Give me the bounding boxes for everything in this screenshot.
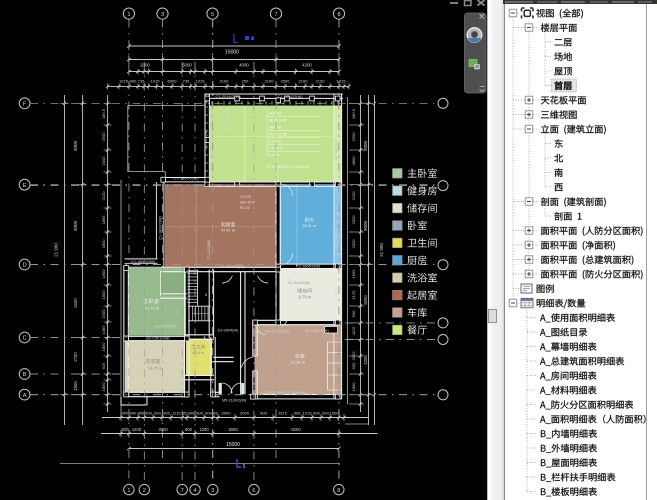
svg-text:900: 900	[122, 411, 129, 416]
svg-text:1115: 1115	[172, 411, 181, 416]
svg-text:5400: 5400	[73, 298, 78, 308]
svg-text:AB1 F8: AB1 F8	[269, 126, 281, 130]
svg-text:1015: 1015	[119, 78, 129, 83]
svg-text:820: 820	[122, 427, 130, 432]
svg-text:1800: 1800	[73, 381, 78, 391]
svg-text:1800: 1800	[101, 290, 106, 300]
svg-text:23.31 m: 23.31 m	[302, 223, 316, 228]
svg-text:C1-2016/2(W): C1-2016/2(W)	[277, 94, 303, 99]
svg-text:A: A	[23, 393, 27, 399]
svg-text:300.45 F: 300.45 F	[240, 201, 256, 205]
svg-text:C2-1800/2(W): C2-1800/2(W)	[173, 176, 199, 181]
svg-text:B1-C5012(W): B1-C5012(W)	[265, 330, 289, 334]
svg-text:3000: 3000	[228, 427, 238, 432]
svg-text:B1-C5012(W): B1-C5012(W)	[146, 337, 170, 341]
svg-text:1500: 1500	[330, 411, 340, 416]
svg-text:900: 900	[185, 427, 193, 432]
svg-text:M5-2100/2(M): M5-2100/2(M)	[222, 399, 247, 403]
svg-text:1500: 1500	[101, 309, 106, 319]
svg-text:E: E	[23, 183, 27, 189]
svg-text:2100: 2100	[265, 78, 275, 83]
svg-text:9000: 9000	[363, 140, 368, 151]
svg-text:6200: 6200	[291, 427, 301, 432]
svg-text:1800: 1800	[101, 382, 106, 392]
svg-text:2000: 2000	[351, 215, 356, 225]
svg-text:C2-3006/2(W) C1-3006(W): C2-3006/2(W) C1-3006(W)	[266, 165, 309, 169]
svg-text:6: 6	[243, 464, 246, 470]
svg-text:1170: 1170	[351, 290, 356, 299]
svg-text:1200: 1200	[199, 427, 209, 432]
svg-text:0 F1 21: 0 F1 21	[269, 140, 281, 144]
svg-text:1515: 1515	[278, 411, 288, 416]
svg-text:2700: 2700	[73, 352, 78, 362]
svg-text:B: B	[23, 372, 27, 378]
svg-text:1: 1	[127, 12, 130, 18]
svg-text:1200: 1200	[132, 427, 142, 432]
svg-text:2100: 2100	[316, 78, 326, 83]
svg-text:900: 900	[351, 310, 356, 317]
svg-text:9000: 9000	[73, 140, 78, 151]
svg-text:B1-C502(W): B1-C502(W)	[155, 325, 177, 329]
svg-text:1115: 1115	[351, 326, 356, 335]
svg-text:900: 900	[154, 411, 161, 416]
svg-text:21 900: 21 900	[379, 243, 384, 257]
svg-text:C1-18/2(W): C1-18/2(W)	[335, 287, 339, 307]
svg-text:4: 4	[193, 488, 196, 494]
svg-text:9000: 9000	[73, 220, 78, 231]
svg-text:21.73 m: 21.73 m	[145, 306, 160, 311]
svg-text:15000: 15000	[225, 50, 239, 56]
svg-text:6000: 6000	[168, 78, 178, 83]
svg-text:180.9: 180.9	[101, 108, 106, 119]
svg-text:1800: 1800	[101, 239, 106, 249]
svg-text:8: 8	[337, 488, 340, 494]
svg-text:2000: 2000	[351, 239, 356, 249]
svg-text:2: 2	[143, 488, 146, 494]
svg-text:4800: 4800	[351, 156, 356, 166]
svg-text:2900: 2900	[351, 132, 356, 142]
svg-text:4.19 m: 4.19 m	[192, 351, 204, 355]
svg-text:900: 900	[196, 411, 203, 416]
svg-text:1015: 1015	[151, 78, 161, 83]
svg-text:C1-1800/2(W): C1-1800/2(W)	[159, 215, 163, 240]
svg-text:1C-18/2(W): 1C-18/2(W)	[335, 139, 339, 159]
svg-text:900: 900	[260, 411, 267, 416]
svg-text:1015: 1015	[196, 78, 206, 83]
svg-text:2000: 2000	[222, 411, 232, 416]
svg-text:18.75 m: 18.75 m	[148, 365, 163, 370]
svg-text:735: 735	[183, 78, 190, 83]
svg-text:7: 7	[274, 12, 277, 18]
svg-text:900: 900	[313, 411, 320, 416]
svg-text:C2-3015/2(W): C2-3015/2(W)	[288, 281, 311, 285]
svg-text:F0.33: F0.33	[240, 206, 250, 210]
svg-text:9000: 9000	[363, 220, 368, 231]
svg-text:2003: 2003	[101, 156, 106, 166]
svg-text:4200: 4200	[363, 355, 368, 365]
svg-text:98.45 + FB: 98.45 + FB	[269, 119, 287, 123]
svg-text:1865: 1865	[101, 215, 106, 225]
svg-text:AB1 F8: AB1 F8	[269, 112, 281, 116]
svg-text:27.81 m: 27.81 m	[291, 359, 306, 364]
svg-text:1800: 1800	[101, 269, 106, 279]
svg-text:900: 900	[163, 411, 170, 416]
svg-text:C1-1806/2(W): C1-1806/2(W)	[220, 265, 245, 269]
svg-text:C1-1506/2(W): C1-1506/2(W)	[140, 390, 165, 394]
svg-text:3800: 3800	[158, 427, 168, 432]
svg-text:FB 1 12 0B: FB 1 12 0B	[269, 133, 288, 137]
svg-text:2000: 2000	[140, 63, 150, 68]
svg-text:47.47 m: 47.47 m	[221, 228, 235, 233]
svg-text:B1-C5012(W): B1-C5012(W)	[305, 329, 329, 333]
svg-text:2500: 2500	[281, 78, 291, 83]
svg-text:1385: 1385	[101, 325, 106, 335]
svg-text:D3-0904(W): D3-0904(W)	[218, 329, 239, 333]
svg-text:3000: 3000	[351, 351, 356, 361]
svg-text:5000: 5000	[363, 295, 368, 305]
svg-text:1800: 1800	[101, 342, 106, 352]
svg-text:2000: 2000	[240, 411, 250, 416]
svg-text:915: 915	[101, 362, 106, 369]
svg-text:900: 900	[130, 411, 137, 416]
svg-text:A3-3100/2(W): A3-3100/2(W)	[225, 107, 229, 131]
svg-text:2500: 2500	[101, 132, 106, 142]
svg-text:2100: 2100	[101, 191, 106, 201]
svg-text:900: 900	[294, 411, 301, 416]
svg-text:2100: 2100	[299, 78, 309, 83]
svg-text:180.9: 180.9	[351, 108, 356, 119]
svg-text:2100: 2100	[351, 191, 356, 201]
svg-text:C2-F8: C2-F8	[240, 195, 251, 199]
svg-text:21 900: 21 900	[54, 243, 59, 257]
svg-text:15000: 15000	[226, 442, 240, 448]
svg-text:900: 900	[205, 411, 212, 416]
svg-text:0 F1 0: 0 F1 0	[269, 154, 279, 158]
svg-text:C1-2016/2(W): C1-2016/2(W)	[215, 94, 241, 99]
svg-text:C1-1800/2(W): C1-1800/2(W)	[131, 260, 156, 264]
svg-text:C: C	[23, 336, 27, 342]
svg-text:250: 250	[242, 78, 249, 83]
svg-text:8: 8	[337, 12, 340, 18]
svg-text:1C-18/2(W): 1C-18/2(W)	[204, 129, 208, 149]
svg-text:85: 85	[213, 411, 218, 416]
svg-text:C1-10/2(W): C1-10/2(W)	[207, 239, 211, 259]
svg-text:6: 6	[252, 488, 255, 494]
svg-text:5000: 5000	[182, 63, 192, 68]
svg-text:4000: 4000	[239, 63, 249, 68]
svg-text:900: 900	[351, 362, 356, 369]
svg-text:7: 7	[181, 488, 184, 494]
svg-text:D: D	[23, 263, 27, 269]
svg-text:3: 3	[211, 488, 214, 494]
svg-text:1665: 1665	[351, 269, 356, 279]
svg-text:8: 8	[205, 292, 208, 297]
svg-text:900: 900	[130, 78, 137, 83]
svg-text:900: 900	[188, 411, 195, 416]
svg-text:1015: 1015	[303, 411, 313, 416]
svg-text:9.79 m: 9.79 m	[299, 295, 312, 300]
svg-text:900: 900	[322, 411, 329, 416]
svg-text:1015: 1015	[337, 78, 347, 83]
svg-text:2100: 2100	[220, 78, 230, 83]
svg-text:900: 900	[145, 411, 152, 416]
svg-text:1800: 1800	[351, 382, 356, 392]
svg-text:5: 5	[211, 12, 214, 18]
svg-text:F: F	[23, 102, 27, 108]
svg-text:1C-18/2(W): 1C-18/2(W)	[335, 229, 339, 249]
svg-text:4200: 4200	[302, 63, 312, 68]
svg-text:3: 3	[161, 12, 164, 18]
svg-text:1: 1	[127, 488, 130, 494]
